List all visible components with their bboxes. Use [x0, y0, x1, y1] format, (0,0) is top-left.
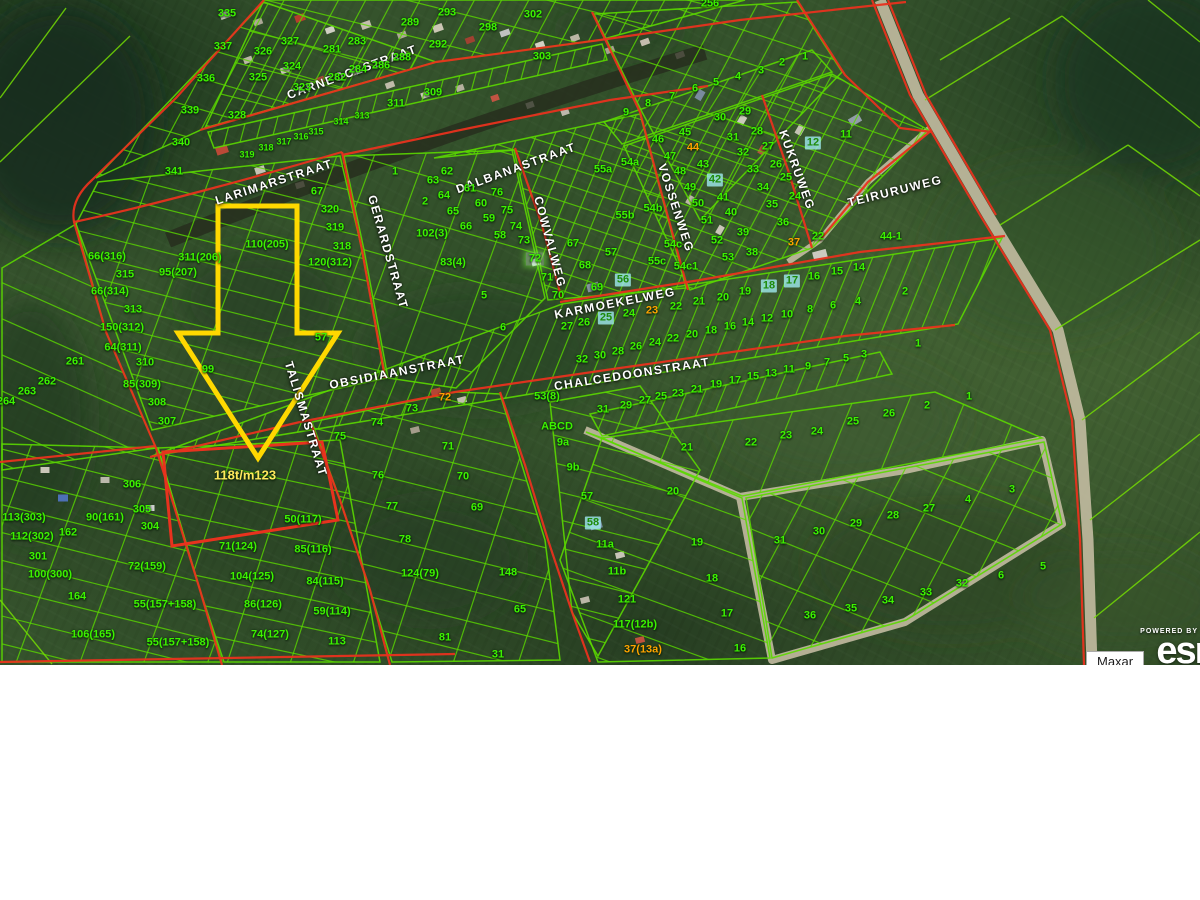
parcel-label: 117(12b)	[613, 620, 657, 631]
parcel-label: 32	[737, 148, 749, 159]
parcel-label: 5	[843, 354, 849, 365]
parcel-label: 3	[861, 350, 867, 361]
parcel-label: 16	[724, 322, 736, 333]
parcel-label: 1	[392, 167, 398, 178]
parcel-label: 19	[710, 380, 722, 391]
parcel-label: 47	[664, 152, 676, 163]
parcel-label: 60	[475, 199, 487, 210]
parcel-label: 106(165)	[71, 630, 115, 641]
parcel-label: 283	[348, 37, 366, 48]
parcel-label: 315	[308, 128, 323, 137]
parcel-label: 25	[655, 392, 667, 403]
parcel-label: 32	[576, 355, 588, 366]
parcel-label: 11b	[608, 567, 626, 578]
parcel-label: 124(79)	[401, 569, 439, 580]
parcel-label: 29	[850, 519, 862, 530]
parcel-label: 162	[59, 528, 77, 539]
parcel-label: 84(115)	[306, 577, 343, 588]
parcel-label: 314	[333, 118, 348, 127]
parcel-label: 55(157+158)	[134, 600, 197, 611]
parcel-label: 319	[239, 151, 254, 160]
parcel-label: 54c	[664, 240, 682, 251]
parcel-label: 41	[717, 193, 729, 204]
parcel-label: 27	[923, 504, 935, 515]
parcel-label: 311	[387, 99, 405, 110]
parcel-label: 72	[526, 253, 544, 266]
parcel-label: 120(312)	[308, 258, 352, 269]
parcel-label: 44-1	[880, 232, 902, 243]
parcel-label: 23	[646, 306, 658, 317]
parcel-label: 112(302)	[10, 532, 53, 543]
parcel-label: 57	[315, 333, 327, 344]
parcel-label: 18	[761, 280, 777, 293]
parcel-label: 5	[481, 291, 487, 302]
page: CARNEOOLSTRAATLARIMARSTRAATGERARDSTRAATD…	[0, 0, 1200, 900]
parcel-label: 50(117)	[284, 515, 321, 526]
parcel-label: 53(8)	[534, 392, 560, 403]
parcel-label: 86(126)	[244, 600, 282, 611]
parcel-label: 15	[831, 267, 843, 278]
parcel-label: 54c1	[674, 262, 698, 273]
parcel-label: 110(205)	[245, 240, 288, 251]
parcel-label: 21	[691, 385, 703, 396]
parcel-label: 17	[721, 609, 733, 620]
parcel-label: 5	[1040, 562, 1046, 573]
parcel-label: 286	[372, 61, 390, 72]
parcel-label: 104(125)	[230, 572, 274, 583]
parcel-label: 70	[457, 472, 469, 483]
parcel-label: 54a	[621, 158, 639, 169]
map-labels-layer: CARNEOOLSTRAATLARIMARSTRAATGERARDSTRAATD…	[0, 0, 1200, 665]
parcel-label: 55c	[648, 257, 666, 268]
parcel-label: 1	[802, 52, 808, 63]
parcel-label: 16	[734, 644, 746, 655]
parcel-label: 306	[123, 480, 141, 491]
parcel-label: 25	[780, 173, 792, 184]
parcel-label: 23	[780, 431, 792, 442]
parcel-label: 281	[323, 45, 341, 56]
street-label: GERARDSTRAAT	[366, 194, 410, 311]
parcel-label: 27	[762, 142, 774, 153]
parcel-label: 22	[812, 232, 824, 243]
parcel-label: 323	[293, 83, 311, 94]
parcel-label: 21	[681, 443, 693, 454]
parcel-label: 75	[501, 206, 513, 217]
parcel-label: 24	[649, 338, 661, 349]
parcel-label: 26	[630, 342, 642, 353]
parcel-label: 337	[214, 42, 232, 53]
parcel-label: 36	[777, 218, 789, 229]
parcel-label: 65	[514, 605, 526, 616]
parcel-label: 256	[701, 0, 719, 10]
parcel-label: 318	[333, 242, 351, 253]
parcel-label: 4	[735, 72, 741, 83]
parcel-label: 28	[887, 511, 899, 522]
parcel-label: 6	[692, 84, 698, 95]
parcel-label: 4	[855, 297, 861, 308]
parcel-label: 26	[770, 160, 782, 171]
parcel-label: 20	[686, 330, 698, 341]
parcel-label: 302	[524, 10, 542, 21]
parcel-label: 3	[1009, 485, 1015, 496]
parcel-label: 30	[714, 113, 726, 124]
parcel-label: 289	[401, 18, 419, 29]
parcel-label: 9b	[567, 463, 580, 474]
parcel-label: 56	[615, 274, 631, 287]
parcel-label: 282	[328, 73, 346, 84]
parcel-label: 264	[0, 397, 15, 408]
parcel-label: 2	[779, 58, 785, 69]
parcel-label: 14	[742, 318, 754, 329]
street-label: KARMOEKELWEG	[553, 285, 676, 320]
parcel-label: 11	[783, 365, 795, 376]
parcel-label: 49	[684, 183, 696, 194]
street-label: OBSIDIAANSTRAAT	[328, 353, 465, 391]
parcel-label: 85(309)	[123, 380, 161, 391]
parcel-label: 24	[811, 427, 823, 438]
parcel-label: 42	[707, 174, 723, 187]
parcel-label: 40	[725, 208, 737, 219]
parcel-label: 7	[669, 92, 675, 103]
parcel-label: 33	[920, 588, 932, 599]
parcel-label: 25	[847, 417, 859, 428]
parcel-label: 75	[334, 432, 346, 443]
parcel-label: 121	[618, 595, 636, 606]
parcel-label: 43	[697, 160, 709, 171]
parcel-label: 29	[620, 401, 632, 412]
parcel-label: 315	[116, 270, 134, 281]
parcel-label: 73	[518, 236, 530, 247]
parcel-label: 313	[124, 305, 142, 316]
parcel-label: 8	[645, 99, 651, 110]
parcel-label: ABCD	[541, 422, 573, 433]
parcel-label: 22	[667, 334, 679, 345]
parcel-label: 339	[181, 106, 199, 117]
parcel-label: 55(157+158)	[147, 638, 210, 649]
parcel-label: 63	[427, 176, 439, 187]
parcel-label: 308	[148, 398, 166, 409]
parcel-label: 2	[422, 197, 428, 208]
parcel-label: 2	[924, 401, 930, 412]
parcel-label: 164	[68, 592, 86, 603]
parcel-label: 263	[18, 387, 36, 398]
parcel-label: 292	[429, 40, 447, 51]
parcel-label: 113	[328, 637, 346, 648]
parcel-label: 68	[579, 261, 591, 272]
parcel-label: 340	[172, 138, 190, 149]
parcel-label: 7	[824, 358, 830, 369]
parcel-label: 32	[956, 579, 968, 590]
parcel-label: 31	[597, 405, 609, 416]
parcel-label: 64(311)	[104, 343, 141, 354]
parcel-label: 69	[471, 503, 483, 514]
parcel-label: 64	[438, 191, 450, 202]
parcel-label: 288	[393, 53, 411, 64]
parcel-label: 52	[711, 236, 723, 247]
parcel-label: 10	[781, 310, 793, 321]
parcel-label: 95(207)	[159, 268, 197, 279]
parcel-label: 99	[202, 365, 214, 376]
parcel-label: 13	[765, 369, 777, 380]
parcel-label: 51	[701, 216, 713, 227]
parcel-label: 8	[807, 305, 813, 316]
parcel-label: 59(114)	[313, 607, 350, 618]
parcel-label: 61	[464, 184, 476, 195]
parcel-label: 62	[441, 167, 453, 178]
parcel-label: 150(312)	[100, 323, 144, 334]
parcel-label: 301	[29, 552, 47, 563]
parcel-label: 113(303)	[2, 513, 45, 524]
parcel-label: 37	[788, 238, 800, 249]
parcel-label: 54b	[644, 204, 663, 215]
parcel-label: 36	[804, 611, 816, 622]
parcel-label: 1	[915, 339, 921, 350]
parcel-label: 4	[965, 495, 971, 506]
parcel-label: 6	[998, 571, 1004, 582]
parcel-label: 118t/m123	[214, 469, 276, 482]
parcel-label: 65	[447, 207, 459, 218]
street-label: LARIMARSTRAAT	[214, 157, 334, 206]
parcel-label: 320	[321, 205, 339, 216]
parcel-label: 83(4)	[440, 258, 466, 269]
parcel-label: 27	[561, 322, 573, 333]
parcel-label: 326	[254, 47, 272, 58]
parcel-label: 34	[882, 596, 894, 607]
parcel-label: 324	[283, 62, 301, 73]
parcel-label: 66	[460, 222, 472, 233]
parcel-label: 57	[605, 248, 617, 259]
parcel-label: 24	[623, 309, 635, 320]
street-label: TEIRURUWEG	[846, 173, 943, 208]
parcel-label: 35	[845, 604, 857, 615]
parcel-label: 73	[406, 404, 418, 415]
parcel-label: 261	[66, 357, 84, 368]
parcel-label: 284	[349, 65, 367, 76]
parcel-label: 71(124)	[219, 542, 257, 553]
parcel-label: 316	[293, 133, 308, 142]
parcel-label: 310	[136, 358, 154, 369]
parcel-label: 20	[717, 293, 729, 304]
parcel-label: 31	[727, 133, 739, 144]
parcel-label: 293	[438, 8, 456, 19]
parcel-label: 58	[585, 517, 601, 530]
parcel-label: 317	[276, 138, 291, 147]
maxar-credit: Maxar	[1086, 651, 1144, 665]
parcel-label: 66(314)	[91, 287, 129, 298]
parcel-label: 33	[747, 165, 759, 176]
parcel-label: 11	[840, 130, 852, 141]
parcel-label: 2	[902, 287, 908, 298]
parcel-label: 46	[652, 135, 664, 146]
parcel-label: 30	[594, 351, 606, 362]
parcel-label: 27	[639, 396, 651, 407]
parcel-label: 85(116)	[294, 545, 331, 556]
parcel-label: 76	[372, 471, 384, 482]
parcel-label: 102(3)	[416, 229, 448, 240]
parcel-label: 16	[808, 272, 820, 283]
parcel-label: 341	[165, 167, 183, 178]
parcel-label: 328	[228, 111, 246, 122]
parcel-label: 11a	[596, 540, 614, 551]
parcel-label: 74	[371, 418, 383, 429]
parcel-label: 304	[141, 522, 159, 533]
parcel-label: 59	[483, 214, 495, 225]
parcel-label: 35	[766, 200, 778, 211]
parcel-label: 9	[623, 108, 629, 119]
parcel-label: 3	[758, 66, 764, 77]
parcel-label: 311(206)	[178, 253, 221, 264]
parcel-label: 66(316)	[88, 252, 126, 263]
parcel-label: 70	[552, 291, 564, 302]
parcel-label: 55b	[616, 211, 635, 222]
parcel-label: 28	[612, 347, 624, 358]
parcel-label: 24	[789, 192, 801, 203]
parcel-label: 17	[784, 275, 800, 288]
parcel-label: 26	[883, 409, 895, 420]
parcel-label: 313	[354, 112, 369, 121]
parcel-label: 9a	[557, 438, 569, 449]
parcel-label: 309	[424, 88, 442, 99]
parcel-label: 19	[691, 538, 703, 549]
parcel-label: 72	[439, 393, 451, 404]
parcel-label: 76	[491, 188, 503, 199]
parcel-label: 90(161)	[86, 513, 124, 524]
parcel-label: 67	[567, 239, 579, 250]
parcel-label: 53	[722, 253, 734, 264]
parcel-label: 17	[729, 376, 741, 387]
parcel-label: 15	[747, 372, 759, 383]
parcel-label: 19	[739, 287, 751, 298]
parcel-label: 18	[706, 574, 718, 585]
parcel-label: 6	[500, 323, 506, 334]
parcel-label: 22	[745, 438, 757, 449]
parcel-label: 38	[746, 248, 758, 259]
parcel-label: 71	[541, 273, 553, 284]
parcel-label: 71	[442, 442, 454, 453]
parcel-label: 9	[805, 362, 811, 373]
parcel-label: 23	[672, 389, 684, 400]
parcel-label: 37(13a)	[624, 645, 662, 656]
parcel-label: 58	[494, 231, 506, 242]
parcel-label: 21	[693, 297, 705, 308]
parcel-label: 81	[439, 633, 451, 644]
parcel-label: 148	[499, 568, 517, 579]
parcel-label: 31	[492, 650, 504, 661]
parcel-label: 50	[692, 199, 704, 210]
parcel-label: 327	[281, 37, 299, 48]
map-canvas[interactable]: CARNEOOLSTRAATLARIMARSTRAATGERARDSTRAATD…	[0, 0, 1200, 665]
parcel-label: 303	[533, 52, 551, 63]
parcel-label: 72(159)	[128, 562, 166, 573]
parcel-label: 69	[591, 283, 603, 294]
parcel-label: 325	[249, 73, 267, 84]
parcel-label: 12	[761, 314, 773, 325]
parcel-label: 262	[38, 377, 56, 388]
parcel-label: 48	[674, 167, 686, 178]
parcel-label: 57	[581, 492, 593, 503]
parcel-label: 74	[510, 222, 522, 233]
parcel-label: 335	[218, 9, 236, 20]
parcel-label: 44	[687, 143, 699, 154]
parcel-label: 39	[737, 228, 749, 239]
parcel-label: 78	[399, 535, 411, 546]
parcel-label: 318	[258, 144, 273, 153]
parcel-label: 67	[311, 187, 323, 198]
parcel-label: 1	[966, 392, 972, 403]
parcel-label: 298	[479, 23, 497, 34]
parcel-label: 29	[739, 107, 751, 118]
parcel-label: 34	[757, 183, 769, 194]
parcel-label: 74(127)	[251, 630, 289, 641]
parcel-label: 77	[386, 502, 398, 513]
street-label: TALISMASTRAAT	[283, 360, 329, 478]
parcel-label: 5	[713, 78, 719, 89]
parcel-label: 307	[158, 417, 176, 428]
parcel-label: 26	[578, 318, 590, 329]
parcel-label: 20	[667, 487, 679, 498]
parcel-label: 100(300)	[28, 570, 72, 581]
parcel-label: 55a	[594, 165, 612, 176]
parcel-label: 18	[705, 326, 717, 337]
parcel-label: 319	[326, 223, 344, 234]
parcel-label: 30	[813, 527, 825, 538]
parcel-label: 25	[598, 312, 614, 325]
esri-logo[interactable]: esri	[1156, 630, 1200, 665]
parcel-label: 22	[670, 302, 682, 313]
parcel-label: 14	[853, 263, 865, 274]
parcel-label: 45	[679, 128, 691, 139]
parcel-label: 305	[133, 505, 151, 516]
parcel-label: 6	[830, 301, 836, 312]
parcel-label: 336	[197, 74, 215, 85]
parcel-label: 12	[805, 137, 821, 150]
parcel-label: 28	[751, 127, 763, 138]
parcel-label: 31	[774, 536, 786, 547]
